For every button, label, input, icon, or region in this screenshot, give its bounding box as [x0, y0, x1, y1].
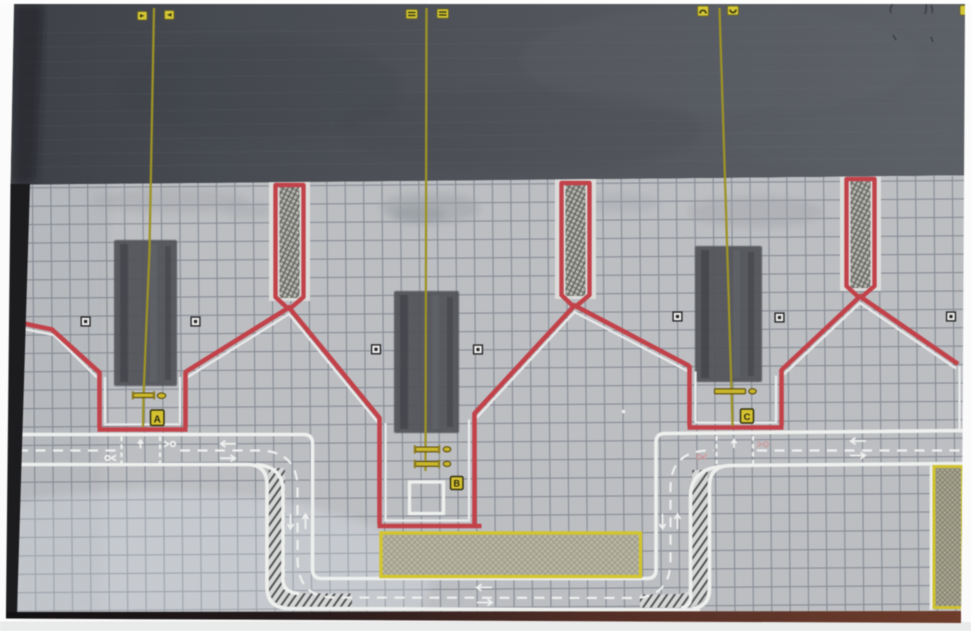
- svg-text:A: A: [154, 415, 161, 426]
- svg-text:B: B: [454, 479, 461, 489]
- svg-text:C: C: [744, 412, 751, 423]
